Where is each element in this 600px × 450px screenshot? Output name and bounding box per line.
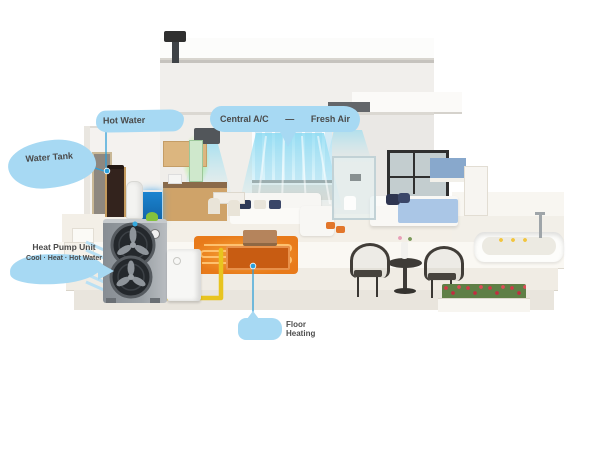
callout-floor-heating-line1: Floor xyxy=(286,320,315,329)
bench-cushion xyxy=(326,222,335,229)
flowers xyxy=(396,233,414,244)
hydro-module-box xyxy=(167,249,201,301)
pillow xyxy=(398,193,410,203)
callout-heat-pump-line1: Heat Pump Unit xyxy=(16,242,112,252)
chaise xyxy=(300,206,334,236)
fresh-air-unit xyxy=(189,140,203,182)
unit-logo xyxy=(150,229,160,239)
callout-floor-heating-text: Floor Heating xyxy=(286,320,315,338)
callout-heat-pump-text: Heat Pump Unit Cool · Heat · Hot Water xyxy=(16,242,112,262)
callout-hot-water: Hot Water xyxy=(96,109,184,133)
callout-heat-pump-line2: Cool · Heat · Hot Water xyxy=(16,255,112,262)
callout-fresh-air-label: Fresh Air xyxy=(311,114,350,124)
roof-top xyxy=(160,38,434,60)
sofa-cushion xyxy=(269,200,281,209)
dining-chair xyxy=(228,200,240,216)
rug xyxy=(226,246,290,270)
hot-water-tank xyxy=(105,167,126,217)
glass-bathroom xyxy=(332,156,376,220)
callout-floor-heating-line2: Heating xyxy=(286,329,315,338)
callout-water-tank-label: Water Tank xyxy=(25,151,73,164)
candles xyxy=(498,238,530,243)
plant-on-unit xyxy=(146,212,158,221)
callout-floor-heating-bubble xyxy=(238,318,282,340)
pedestal xyxy=(464,166,488,216)
bench-cushion xyxy=(336,226,345,233)
heat-pump-home-diagram: Hot Water Water Tank Central A/C — Fresh… xyxy=(0,0,600,450)
rooftop-vent xyxy=(164,31,186,42)
callout-central-ac-label: Central A/C xyxy=(220,114,269,124)
water-softener-cylinder xyxy=(126,181,143,219)
blue-cloth-table xyxy=(430,158,466,182)
bath-faucet xyxy=(539,212,542,238)
callout-hot-water-label: Hot Water xyxy=(103,115,145,126)
sofa-cushion xyxy=(254,200,266,209)
vase xyxy=(401,242,408,259)
callout-comfort: Central A/C — Fresh Air xyxy=(210,106,360,132)
coffee-table xyxy=(243,230,277,246)
callout-comfort-separator: — xyxy=(285,114,294,124)
planter xyxy=(438,298,530,312)
callout-floor-heating-pointer xyxy=(247,311,259,319)
living-window-shade xyxy=(252,180,332,183)
dining-chair xyxy=(208,198,220,214)
